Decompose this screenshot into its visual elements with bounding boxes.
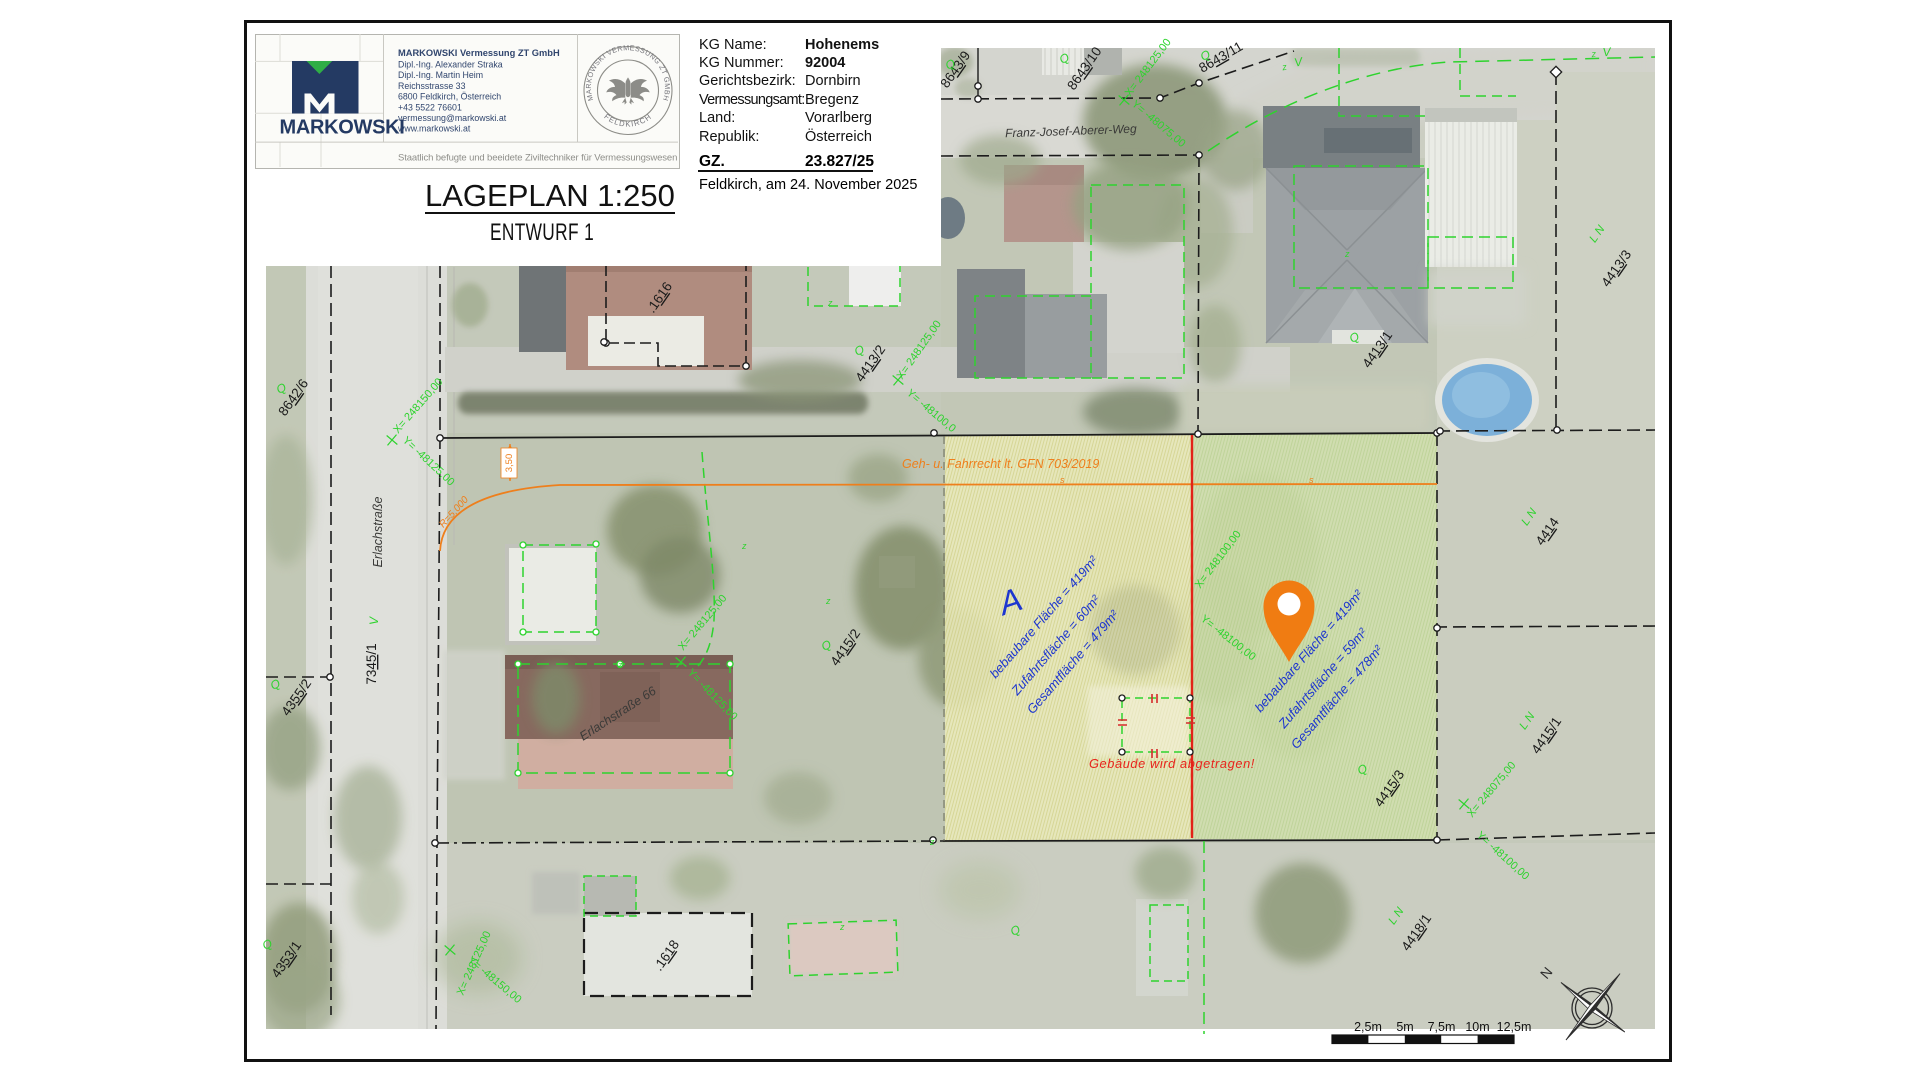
svg-text:vermessung@markowski.at: vermessung@markowski.at (398, 113, 507, 123)
svg-text:MARKOWSKI: MARKOWSKI (279, 117, 404, 139)
svg-text:FELDKIRCH: FELDKIRCH (602, 112, 653, 129)
svg-text:Staatlich befugte und beeidete: Staatlich befugte und beeidete Ziviltech… (398, 153, 677, 164)
svg-text:www.markowski.at: www.markowski.at (397, 124, 471, 134)
svg-text:6800 Feldkirch, Österreich: 6800 Feldkirch, Österreich (398, 92, 501, 102)
svg-text:Dipl.-Ing. Martin Heim: Dipl.-Ing. Martin Heim (398, 70, 483, 80)
svg-text:Reichsstrasse 33: Reichsstrasse 33 (398, 81, 466, 91)
svg-text:MARKOWSKI Vermessung ZT GmbH: MARKOWSKI Vermessung ZT GmbH (398, 48, 560, 58)
svg-text:Dipl.-Ing. Alexander Straka: Dipl.-Ing. Alexander Straka (398, 60, 503, 70)
svg-text:+43 5522 76601: +43 5522 76601 (398, 102, 462, 112)
